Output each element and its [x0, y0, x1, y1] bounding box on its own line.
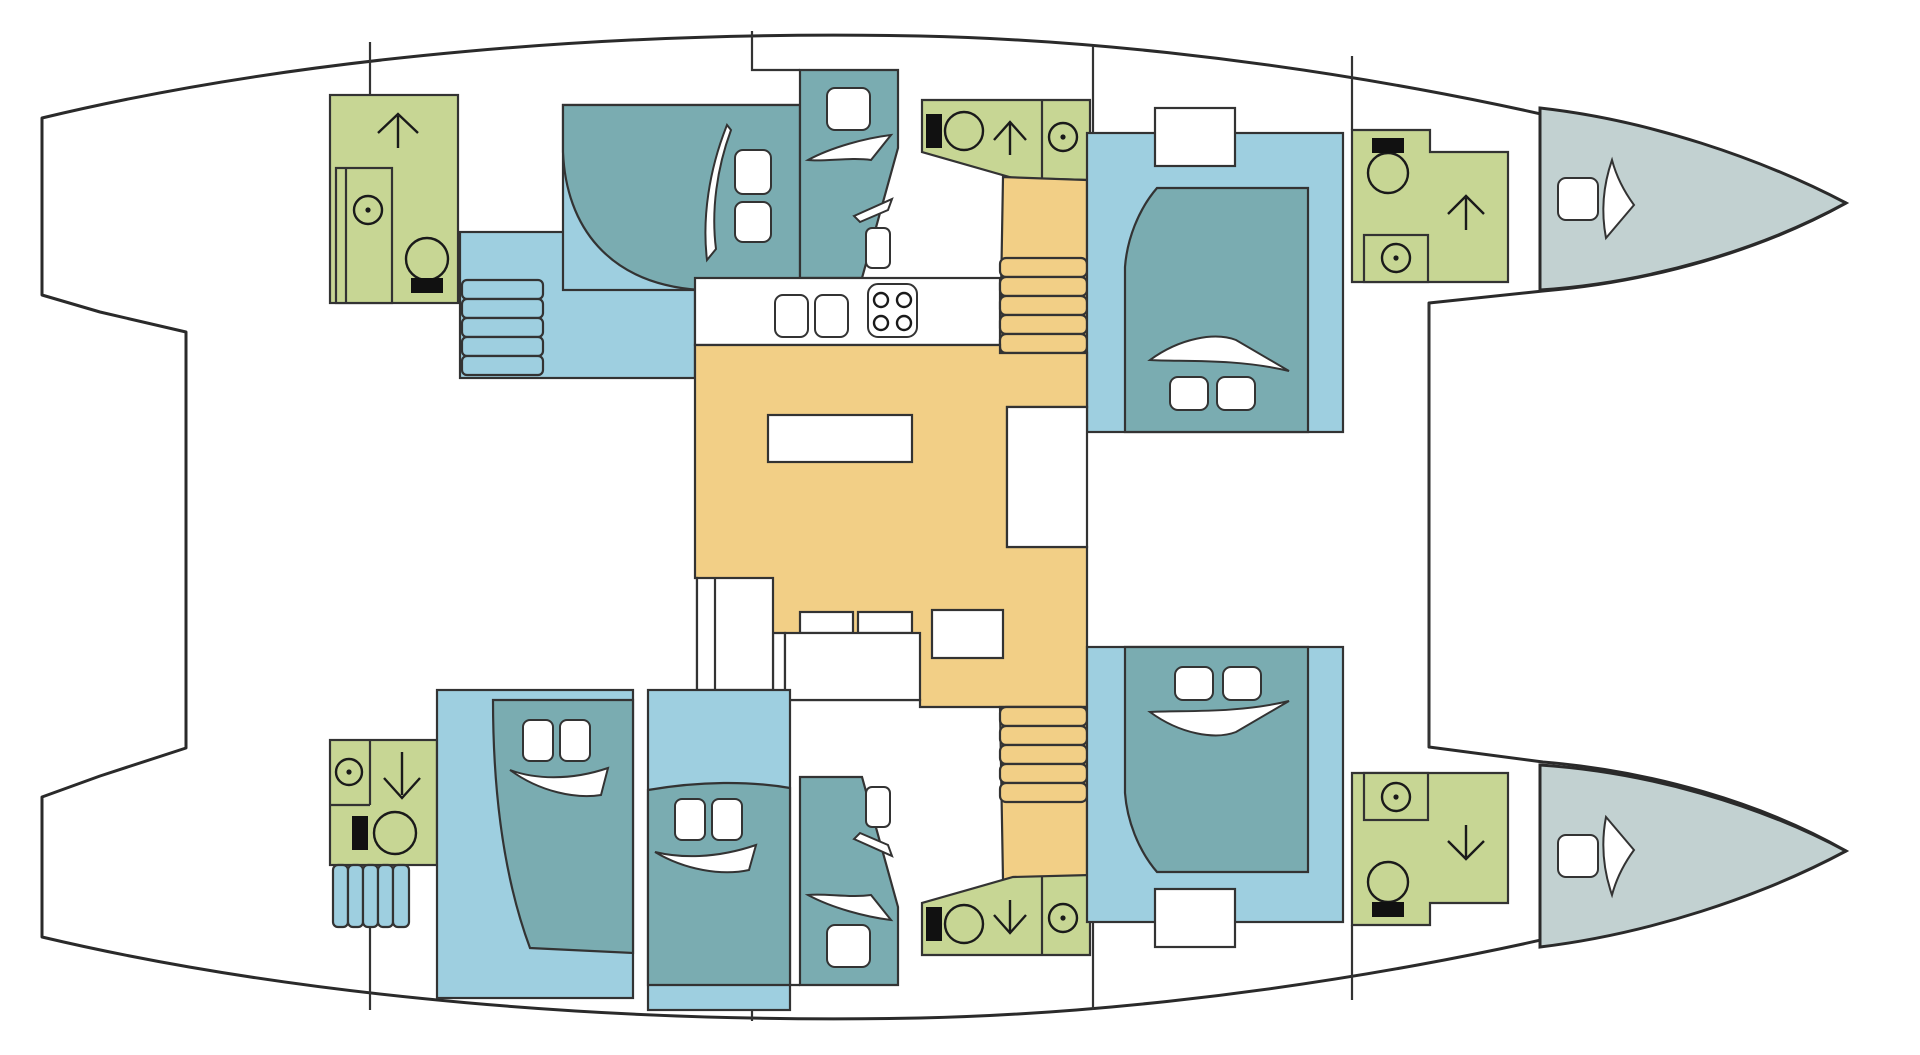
pillow-icon [1170, 377, 1208, 410]
cabin-starboard-mid [648, 690, 790, 1010]
deck-hatch-notch [1155, 108, 1235, 166]
pillow-icon [712, 799, 742, 840]
deck-plan-svg [0, 0, 1920, 1055]
deck-hatch-notch [1155, 889, 1235, 947]
galley [695, 278, 1000, 345]
pillow-icon [827, 88, 870, 130]
steps-icon [462, 280, 543, 375]
double-bed [1125, 647, 1308, 872]
sink-icon [775, 295, 808, 337]
deck-plan-page [0, 0, 1920, 1055]
shower-stall [336, 168, 392, 303]
pillow-icon [560, 720, 590, 761]
berth-starboard-mid [800, 777, 898, 985]
pillow-icon [523, 720, 553, 761]
hatch-icon [1558, 178, 1598, 220]
stove-icon [868, 284, 917, 337]
pillow-icon [866, 787, 890, 827]
salon [695, 345, 1087, 707]
pillow-icon [827, 925, 870, 967]
bow-starboard [1540, 765, 1846, 947]
bathroom-starboard-forward [1352, 773, 1508, 925]
pillow-icon [1217, 377, 1255, 410]
bathroom-port-aft [330, 95, 458, 303]
cabin-starboard-aft [437, 690, 633, 998]
dining-table-icon [768, 415, 912, 462]
pillow-icon [735, 202, 771, 242]
stairs-port [1000, 177, 1087, 353]
bow-port [1540, 108, 1846, 290]
pillow-icon [735, 150, 771, 194]
stairs-starboard [1000, 707, 1087, 880]
pillow-icon [1175, 667, 1213, 700]
pillow-icon [1223, 667, 1261, 700]
hatch-icon [1558, 835, 1598, 877]
berth-port-mid [800, 70, 898, 278]
pillow-icon [866, 228, 890, 268]
cabin-starboard-forward [1087, 647, 1343, 947]
steps-icon [1000, 258, 1087, 353]
pillow-icon [675, 799, 705, 840]
steps-icon [333, 865, 409, 927]
cabin-port-forward [1087, 108, 1343, 432]
sink-icon [815, 295, 848, 337]
bathroom-port-forward [1352, 130, 1508, 282]
nav-seat [1007, 407, 1087, 547]
steps-icon [1000, 707, 1087, 802]
